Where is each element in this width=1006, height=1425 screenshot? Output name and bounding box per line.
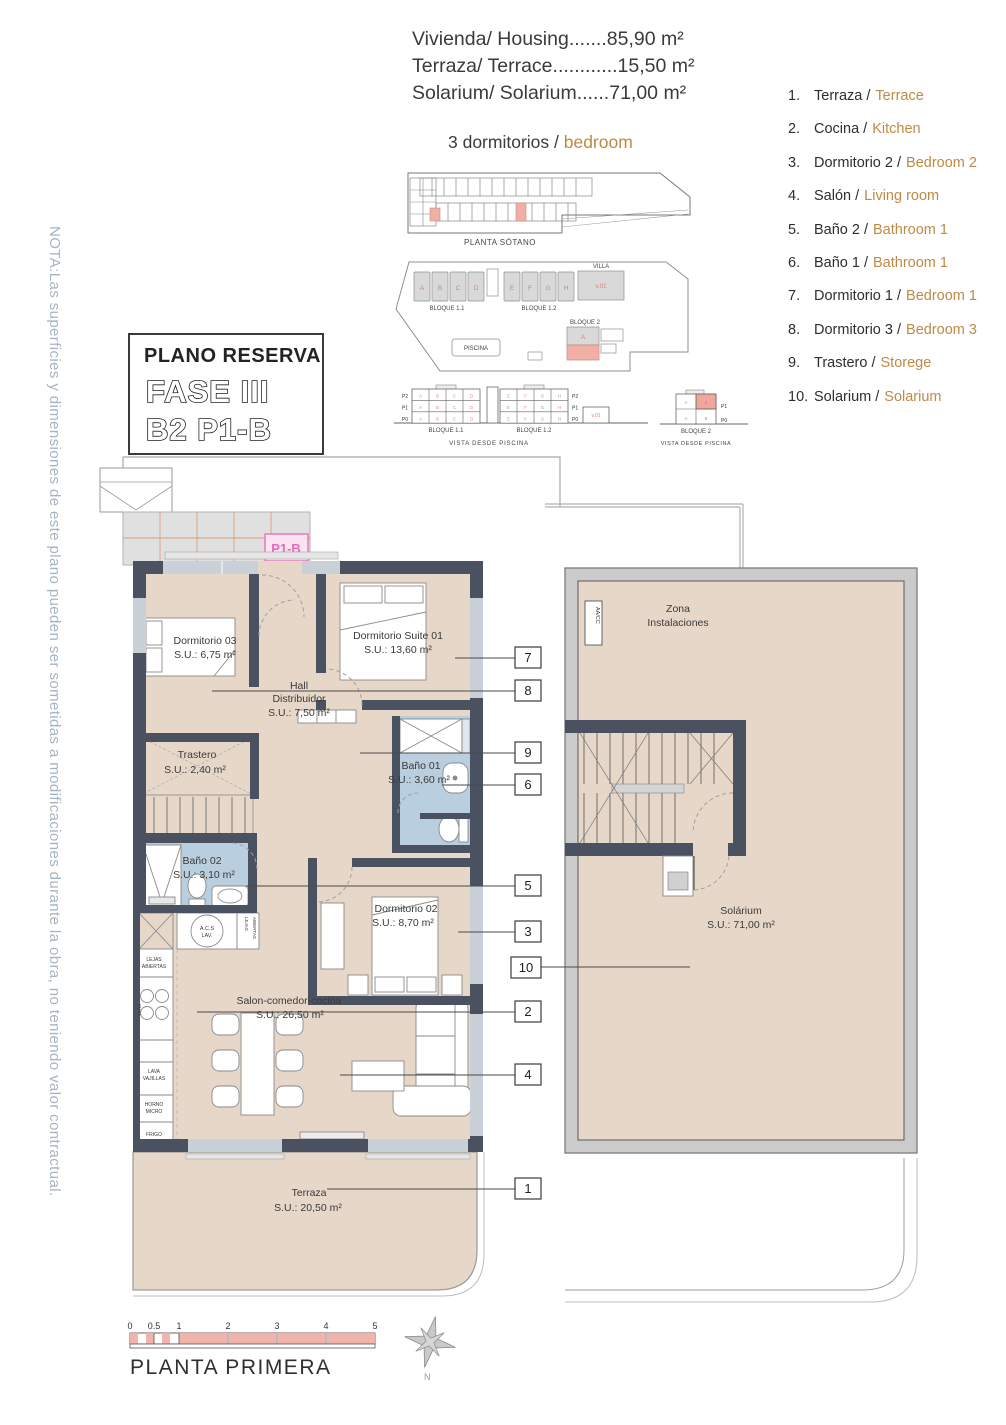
solarium-name-label: Solárium [720, 905, 762, 917]
svg-text:G: G [541, 405, 544, 410]
compass-rose [399, 1311, 461, 1373]
legend-item: 10.Solarium /Solarium [788, 389, 977, 422]
svg-text:0: 0 [127, 1321, 132, 1331]
svg-text:D: D [474, 285, 479, 292]
svg-text:PISCINA: PISCINA [464, 346, 488, 352]
svg-text:P2: P2 [402, 394, 408, 400]
plot-boundary [123, 457, 560, 512]
svg-text:5: 5 [372, 1321, 377, 1331]
svg-text:A: A [419, 405, 422, 410]
svg-text:B: B [705, 400, 708, 405]
svg-text:LAVA: LAVA [148, 1069, 161, 1075]
svg-text:P0: P0 [721, 418, 727, 424]
bedrooms-en: bedroom [564, 132, 633, 152]
bloque11-elev-label: BLOQUE 1.1 [428, 428, 464, 434]
svg-text:ABIERTAS: ABIERTAS [252, 917, 257, 939]
svg-text:C: C [453, 416, 456, 421]
svg-text:E: E [507, 405, 510, 410]
svg-text:A: A [420, 285, 425, 292]
callout-4: 4 [524, 1067, 531, 1082]
fase-label: FASE III [146, 374, 269, 409]
terraza-area: S.U.: 20,50 m² [274, 1202, 342, 1214]
dorm02-name: Dormitorio 02 [374, 903, 437, 915]
dorm03-name: Dormitorio 03 [173, 635, 236, 647]
terraza-name: Terraza [291, 1187, 326, 1199]
svg-text:H: H [558, 416, 561, 421]
svg-text:A: A [581, 335, 585, 341]
elevation-bloques-1: A B C D A B C D A B C D E F G H E F G H … [394, 385, 648, 447]
legend-item: 9.Trastero /Storege [788, 355, 977, 388]
svg-text:H: H [564, 285, 569, 292]
suite-area: S.U.: 13,60 m² [364, 644, 432, 656]
hall-name-2: Distribuidor [272, 693, 326, 705]
vista-label-1: VISTA DESDE PISCINA [449, 441, 529, 447]
callout-8: 8 [524, 683, 531, 698]
svg-text:2: 2 [225, 1321, 230, 1331]
outline-title-svg: FASE III B2 P1-B [130, 370, 318, 450]
legend-item: 3.Dormitorio 2 /Bedroom 2 [788, 155, 977, 188]
callout-1: 1 [524, 1181, 531, 1196]
svg-text:VAJILLAS: VAJILLAS [143, 1076, 166, 1082]
apartment-plan: P1-B [95, 450, 710, 1315]
svg-text:F: F [524, 394, 527, 399]
unit-label: B2 P1-B [146, 412, 272, 447]
bano01-area: S.U.: 3,60 m² [388, 774, 450, 786]
svg-text:B: B [438, 285, 442, 292]
scale-bar: 0 0.5 1 2 3 4 5 [127, 1321, 377, 1348]
svg-text:C: C [456, 285, 461, 292]
svg-text:P0: P0 [402, 417, 408, 423]
bloque12-elev-label: BLOQUE 1.2 [516, 428, 552, 434]
svg-text:B: B [436, 416, 439, 421]
svg-text:v.01: v.01 [596, 284, 608, 290]
bloque12-site-label: BLOQUE 1.2 [521, 306, 557, 312]
svg-text:VITRO: VITRO [137, 1004, 142, 1016]
floor-plan-sheet: Vivienda/ Housing.......85,90 m² Terraza… [0, 0, 1006, 1425]
svg-text:H: H [558, 405, 561, 410]
callout-7: 7 [524, 650, 531, 665]
exterior-stair [100, 468, 172, 512]
toilet-bath1 [439, 816, 468, 842]
dorm03-area: S.U.: 6,75 m² [174, 649, 236, 661]
callout-10: 10 [519, 960, 533, 975]
svg-text:B: B [436, 405, 439, 410]
site-diagrams: PLANTA SÓTANO A B C D BLOQUE 1.1 [390, 168, 750, 458]
legend-item: 7.Dormitorio 1 /Bedroom 1 [788, 288, 977, 321]
bano02-area: S.U.: 3,10 m² [173, 869, 235, 881]
svg-text:BLOQUE 2: BLOQUE 2 [570, 320, 601, 326]
svg-text:4: 4 [323, 1321, 328, 1331]
svg-text:E: E [507, 416, 510, 421]
svg-text:D: D [470, 394, 473, 399]
closet-dorm02 [321, 903, 344, 969]
svg-text:D: D [470, 416, 473, 421]
svg-text:F: F [524, 416, 527, 421]
svg-text:P0: P0 [572, 417, 578, 423]
svg-text:MICRO: MICRO [146, 1109, 163, 1115]
solarium-area-label: S.U.: 71,00 m² [707, 919, 775, 931]
svg-text:A: A [419, 416, 422, 421]
bloque2-highlight [567, 345, 599, 360]
reservation-title-box: PLANO RESERVA FASE III B2 P1-B [128, 333, 324, 455]
svg-text:ABIERTAS: ABIERTAS [142, 964, 167, 970]
terrace-floor [133, 1152, 477, 1290]
callout-2: 2 [524, 1004, 531, 1019]
entry-opening [258, 561, 302, 574]
callout-5: 5 [524, 878, 531, 893]
basement-label: PLANTA SÓTANO [464, 238, 536, 247]
basement-plan: PLANTA SÓTANO [408, 173, 690, 247]
bedrooms-line: 3 dormitorios / bedroom [448, 132, 633, 153]
sink-bath2 [212, 886, 248, 907]
svg-text:P1: P1 [572, 406, 578, 412]
svg-text:P1: P1 [721, 404, 727, 410]
bloque2-elev-label: BLOQUE 2 [681, 429, 712, 435]
svg-text:v.01: v.01 [591, 413, 600, 419]
area-summary: Vivienda/ Housing.......85,90 m² Terraza… [412, 26, 695, 107]
callout-6: 6 [524, 777, 531, 792]
legend-item: 1.Terraza /Terrace [788, 88, 977, 121]
hall-area: S.U.: 7,50 m² [268, 707, 330, 719]
basement-highlight-cell [430, 208, 440, 221]
svg-text:P2: P2 [572, 394, 578, 400]
legend-item: 4.Salón /Living room [788, 188, 977, 221]
site-plan: A B C D BLOQUE 1.1 E F G H BLOQUE 1.2 VI… [396, 262, 688, 371]
vista-label-2: VISTA DESDE PISCINA [661, 441, 732, 447]
svg-text:P1: P1 [402, 406, 408, 412]
svg-text:G: G [545, 285, 550, 292]
dining-set [212, 1013, 303, 1115]
svg-text:HORNO: HORNO [145, 1102, 164, 1108]
svg-text:C: C [453, 394, 456, 399]
north-label: N [424, 1372, 431, 1382]
summary-solarium: Solarium/ Solarium......71,00 m² [412, 80, 695, 107]
svg-text:A: A [419, 394, 422, 399]
svg-text:FRIGO: FRIGO [146, 1132, 162, 1138]
salon-area: S.U.: 26,50 m² [256, 1009, 324, 1021]
kitchen-counter [135, 949, 177, 1150]
bano01-name: Baño 01 [401, 760, 440, 772]
svg-text:A: A [685, 416, 688, 421]
svg-text:C: C [453, 405, 456, 410]
svg-text:0.5: 0.5 [148, 1321, 161, 1331]
disclaimer-note: NOTA:Las superficies y dimensiones de es… [41, 226, 63, 1214]
suite-name: Dormitorio Suite 01 [353, 630, 443, 642]
svg-text:LAV.: LAV. [201, 933, 212, 939]
villa-building: VILLA v.01 [578, 264, 624, 300]
bloque-1-1-buildings: A B C D BLOQUE 1.1 [414, 272, 484, 312]
svg-text:G: G [541, 416, 544, 421]
svg-text:B: B [705, 416, 708, 421]
callout-3: 3 [524, 924, 531, 939]
legend-item: 5.Baño 2 /Bathroom 1 [788, 222, 977, 255]
piscina: PISCINA [452, 339, 500, 356]
basement-highlight-cell [516, 203, 526, 221]
svg-text:3: 3 [274, 1321, 279, 1331]
svg-text:1: 1 [176, 1321, 181, 1331]
bloque-2-building: BLOQUE 2 A [567, 320, 623, 360]
coffee-table [352, 1061, 404, 1091]
room-legend: 1.Terraza /Terrace 2.Cocina /Kitchen 3.D… [788, 88, 977, 422]
tv-unit [300, 1132, 364, 1139]
svg-text:LEJAS: LEJAS [146, 957, 162, 963]
svg-text:D: D [470, 405, 473, 410]
svg-text:E: E [510, 285, 515, 292]
footer: 0 0.5 1 2 3 4 5 PLANTA PRIMERA N [110, 1315, 480, 1420]
svg-text:F: F [524, 405, 527, 410]
salon-name: Salon-comedor-cocina [236, 995, 341, 1007]
plano-reserva-title: PLANO RESERVA [144, 345, 322, 368]
bano02-name: Baño 02 [182, 855, 221, 867]
summary-terrace: Terraza/ Terrace............15,50 m² [412, 53, 695, 80]
svg-text:A.C.S: A.C.S [200, 926, 215, 932]
svg-text:LEJAS: LEJAS [244, 917, 249, 931]
bloque-1-2-buildings: E F G H BLOQUE 1.2 [504, 272, 574, 312]
floor-name: PLANTA PRIMERA [130, 1356, 332, 1379]
bloque11-site-label: BLOQUE 1.1 [429, 306, 465, 312]
summary-housing: Vivienda/ Housing.......85,90 m² [412, 26, 695, 53]
dorm02-area: S.U.: 8,70 m² [372, 917, 434, 929]
bedrooms-es: 3 dormitorios / [448, 132, 564, 152]
elevation-bloque-2: A B A B P1 P0 BLOQUE 2 VISTA DESDE PISCI… [660, 390, 748, 447]
svg-text:B: B [436, 394, 439, 399]
svg-text:G: G [541, 394, 544, 399]
hall-name-1: Hall [290, 680, 308, 692]
svg-text:A: A [685, 400, 688, 405]
svg-text:E: E [507, 394, 510, 399]
trastero-area: S.U.: 2,40 m² [164, 764, 226, 776]
svg-text:H: H [558, 394, 561, 399]
svg-text:F: F [528, 285, 532, 292]
legend-item: 8.Dormitorio 3 /Bedroom 3 [788, 322, 977, 355]
shower-bath1 [400, 719, 470, 753]
legend-item: 6.Baño 1 /Bathroom 1 [788, 255, 977, 288]
trastero-name: Trastero [178, 749, 217, 761]
callout-9: 9 [524, 745, 531, 760]
bed-dorm03 [143, 618, 235, 676]
svg-text:VILLA: VILLA [593, 264, 609, 270]
legend-item: 2.Cocina /Kitchen [788, 121, 977, 154]
